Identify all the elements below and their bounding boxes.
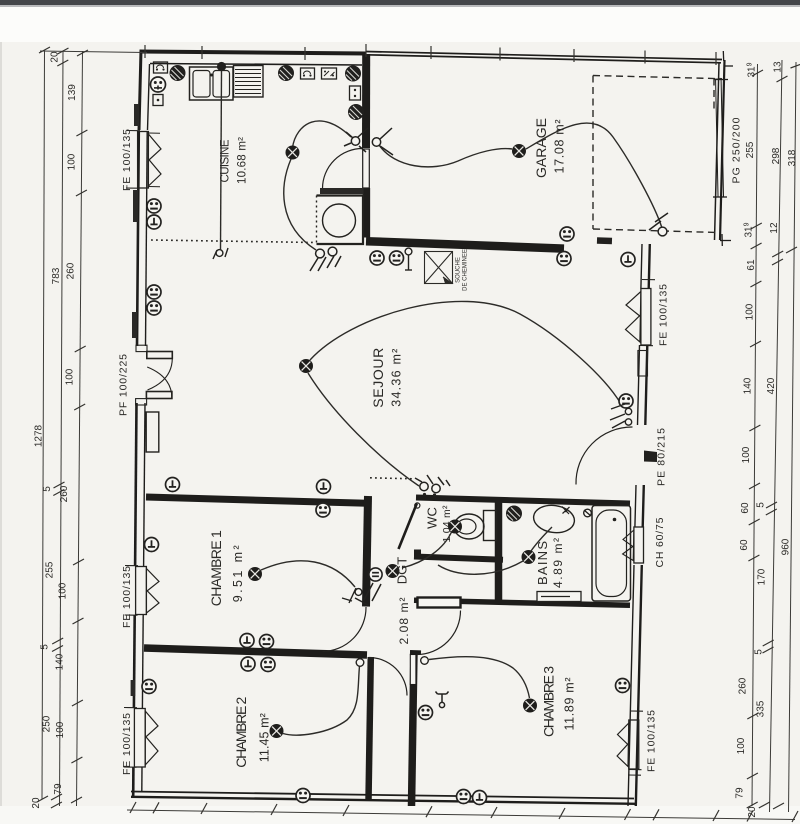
svg-text:20: 20: [747, 806, 758, 818]
svg-text:FE 100/135: FE 100/135: [121, 566, 133, 628]
svg-text:255: 255: [745, 141, 756, 158]
svg-text:60: 60: [739, 539, 750, 551]
svg-text:5: 5: [42, 486, 53, 492]
svg-text:335: 335: [756, 700, 767, 717]
svg-text:FE 100/135: FE 100/135: [121, 129, 133, 191]
svg-text:140: 140: [55, 653, 66, 670]
svg-text:260: 260: [66, 262, 77, 279]
svg-text:5: 5: [754, 649, 765, 655]
svg-text:BAINS: BAINS: [535, 541, 550, 585]
svg-text:WC: WC: [425, 507, 440, 529]
svg-text:100: 100: [741, 446, 752, 463]
svg-text:140: 140: [743, 377, 754, 394]
svg-text:CHAMBRE 2: CHAMBRE 2: [233, 696, 249, 767]
svg-text:FE 100/135: FE 100/135: [658, 284, 670, 346]
svg-text:60: 60: [740, 502, 751, 514]
svg-text:12: 12: [769, 222, 780, 234]
svg-text:170: 170: [757, 568, 768, 585]
svg-text:10.68 m²: 10.68 m²: [237, 137, 249, 184]
svg-text:318: 318: [787, 149, 798, 166]
svg-text:2.08 m²: 2.08 m²: [397, 598, 411, 645]
svg-text:SEJOUR: SEJOUR: [370, 348, 386, 408]
svg-text:260: 260: [59, 485, 70, 502]
svg-text:1.04 m²: 1.04 m²: [441, 505, 453, 543]
svg-text:20: 20: [50, 51, 61, 63]
svg-text:PE 80/215: PE 80/215: [656, 428, 668, 486]
svg-text:PG 250/200: PG 250/200: [731, 117, 743, 183]
svg-text:260: 260: [738, 677, 749, 694]
svg-text:100: 100: [745, 303, 756, 320]
svg-text:100: 100: [67, 153, 78, 170]
svg-text:1278: 1278: [34, 424, 45, 447]
svg-text:DE CHEMINEE: DE CHEMINEE: [463, 249, 469, 291]
svg-text:11.89 m²: 11.89 m²: [563, 678, 577, 731]
svg-text:783: 783: [51, 267, 62, 284]
svg-text:20: 20: [31, 797, 42, 809]
svg-text:960: 960: [781, 538, 792, 555]
svg-text:139: 139: [67, 84, 78, 101]
svg-text:79: 79: [53, 783, 64, 795]
svg-text:FE 100/135: FE 100/135: [646, 710, 658, 772]
svg-text:17.08 m²: 17.08 m²: [553, 120, 567, 174]
svg-text:250: 250: [42, 715, 53, 732]
svg-text:5: 5: [756, 502, 767, 508]
svg-text:CHAMBRE 3: CHAMBRE 3: [540, 666, 556, 737]
svg-text:CH 60/75: CH 60/75: [654, 517, 666, 567]
svg-text:34.36 m²: 34.36 m²: [390, 349, 404, 407]
svg-text:PF 100/225: PF 100/225: [118, 354, 130, 416]
svg-text:DGT: DGT: [395, 557, 410, 585]
svg-text:5: 5: [40, 644, 51, 650]
svg-text:9.51 m²: 9.51 m²: [231, 545, 245, 602]
svg-text:420: 420: [766, 377, 777, 394]
svg-text:11.45 m²: 11.45 m²: [257, 713, 271, 762]
svg-text:FE 100/135: FE 100/135: [121, 713, 133, 775]
svg-text:SOUCHE: SOUCHE: [456, 257, 462, 283]
svg-text:GARAGE: GARAGE: [533, 118, 549, 178]
svg-text:CHAMBRE 1: CHAMBRE 1: [208, 530, 224, 606]
svg-text:4.89 m²: 4.89 m²: [551, 538, 565, 588]
svg-text:255: 255: [45, 561, 56, 578]
svg-text:100: 100: [55, 721, 66, 738]
svg-text:CUISINE: CUISINE: [220, 139, 232, 182]
svg-text:100: 100: [58, 582, 69, 599]
svg-text:100: 100: [736, 737, 747, 754]
svg-text:61: 61: [746, 259, 757, 271]
svg-text:13: 13: [773, 61, 784, 73]
svg-text:298: 298: [771, 147, 782, 164]
svg-text:100: 100: [65, 368, 76, 385]
svg-text:79: 79: [735, 787, 746, 799]
